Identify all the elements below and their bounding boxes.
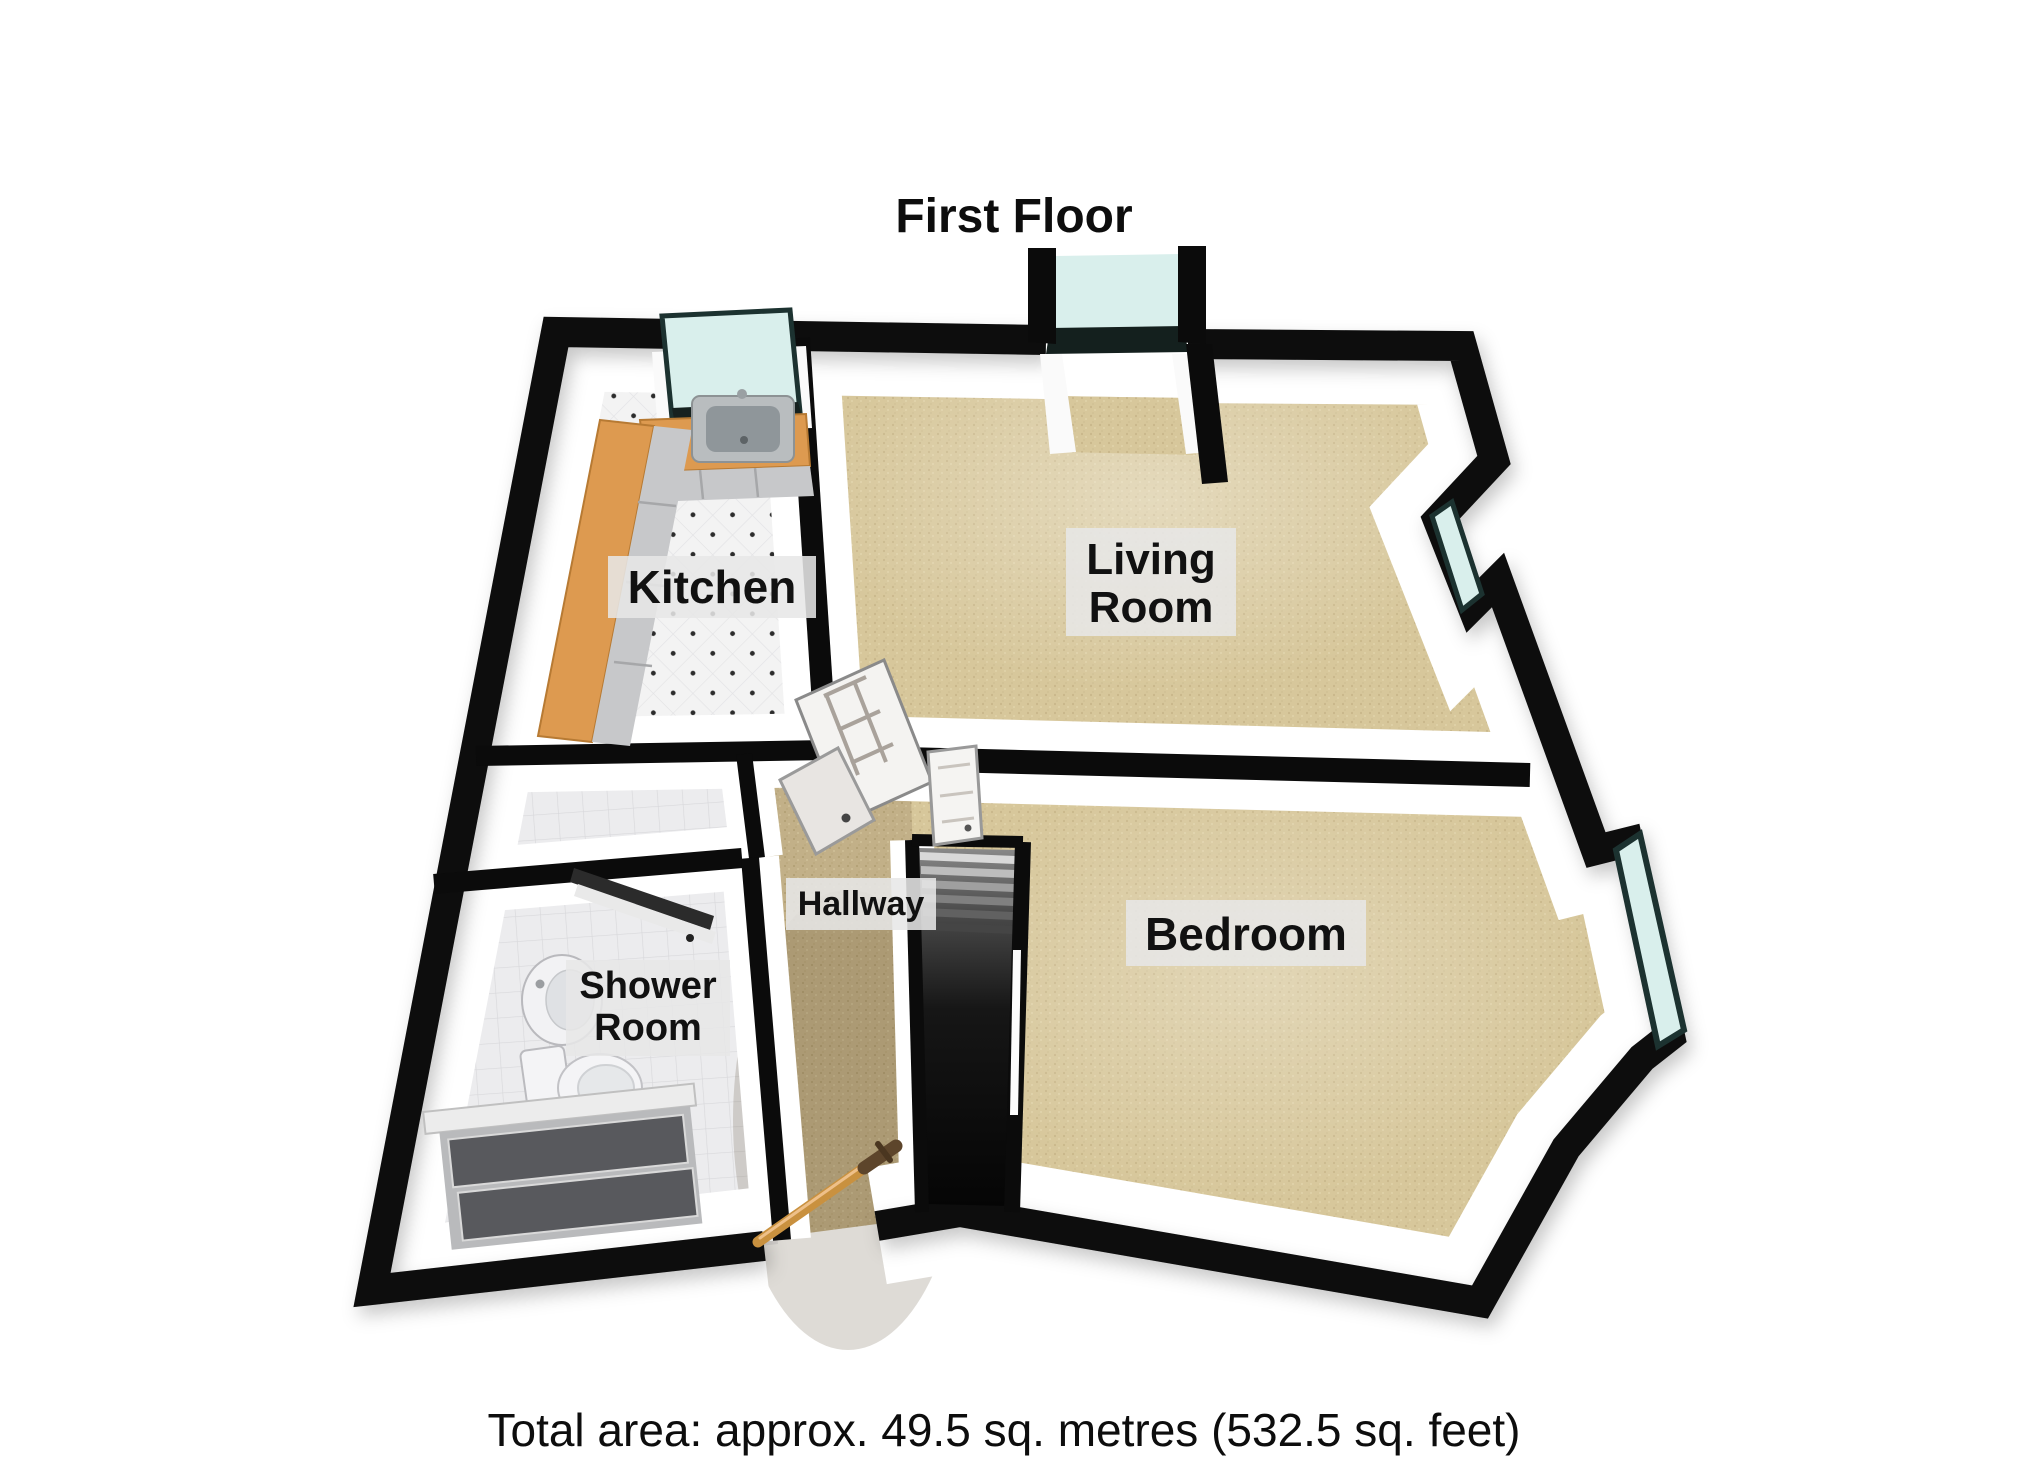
hallway-label: Hallway [786,878,936,930]
shower-room-label-line2: Room [594,1007,702,1049]
entrance-door [1028,246,1228,484]
entrance-glass [1056,254,1180,332]
kitchen-sink-bowl [706,406,780,452]
vanity-unit [423,1084,708,1252]
porch-post-right [1178,246,1206,344]
shower-door-handle [686,934,694,942]
total-area-caption: Total area: approx. 49.5 sq. metres (532… [487,1404,1520,1456]
page-title: First Floor [895,190,1132,243]
entrance-carpet [1058,396,1196,455]
kitchen-cabinet-front-top [646,466,814,502]
kitchen-sink-drain [740,436,748,444]
bedroom-label: Bedroom [1126,900,1366,966]
shower-room-label: Shower Room [566,960,730,1056]
bedroom-door-handle [965,825,972,832]
kitchen-label: Kitchen [608,556,816,618]
entrance-frame [1046,326,1188,354]
porch-post-left [1028,248,1056,344]
bedroom-label-text: Bedroom [1145,908,1347,960]
living-room-label: Living Room [1066,528,1236,636]
kitchen-tap [737,389,747,399]
bedroom-door [928,746,982,845]
living-room-label-line1: Living [1086,535,1216,584]
shower-room-label-line1: Shower [579,965,716,1007]
kitchen-label-text: Kitchen [628,561,797,613]
shower-room-tap [536,980,545,989]
landing-door-handle [842,814,851,823]
kitchen-bottom-wall [476,750,828,756]
floor-plan-canvas: Kitchen Living Room Hallway Shower Room … [0,0,2025,1473]
floor-plan-page: Kitchen Living Room Hallway Shower Room … [0,0,2025,1473]
hallway-label-text: Hallway [798,885,925,923]
living-room-label-line2: Room [1089,583,1214,632]
